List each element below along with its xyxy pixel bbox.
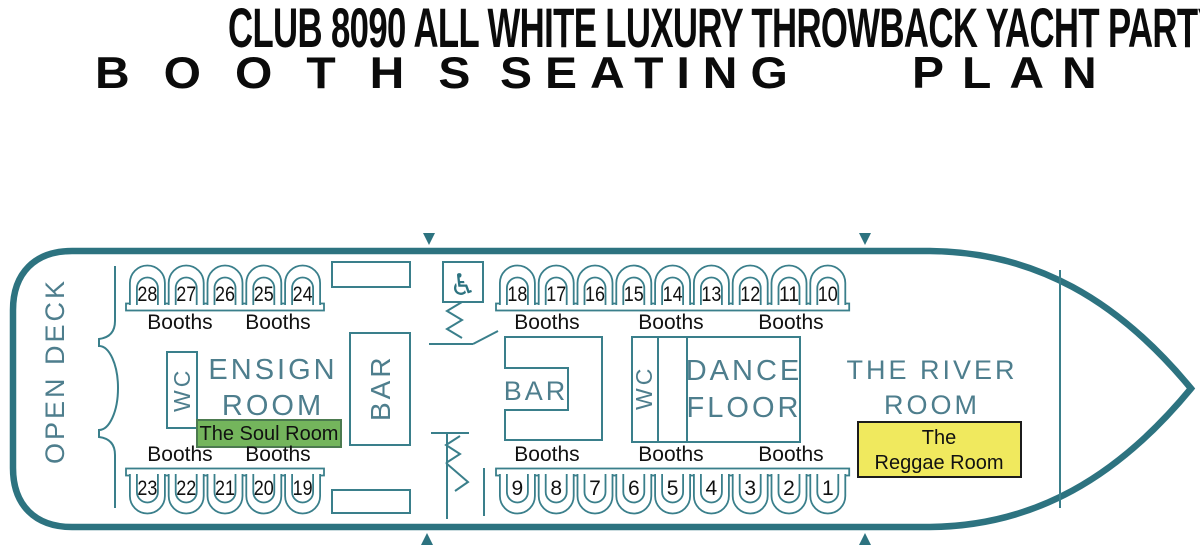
booth-number-28: 28 <box>137 283 157 306</box>
booth-number-13: 13 <box>701 283 721 306</box>
booths-label: Booths <box>245 443 310 466</box>
top-wall-box <box>332 262 410 287</box>
entrance-arrow-top-right <box>859 233 871 245</box>
booth-number-21: 21 <box>215 477 235 500</box>
dance-floor-label-line1: DANCE <box>686 355 803 387</box>
booth-group-top-left: 2827262524BoothsBooths <box>126 266 324 335</box>
booth-number-22: 22 <box>176 477 196 500</box>
booths-label: Booths <box>638 443 703 466</box>
booth-number-14: 14 <box>663 283 683 306</box>
stairs-top <box>429 302 498 344</box>
booth-number-27: 27 <box>176 283 196 306</box>
booth-number-7: 7 <box>589 477 601 500</box>
entrance-arrow-top-left <box>423 233 435 245</box>
booth-number-2: 2 <box>783 477 795 500</box>
booth-number-24: 24 <box>293 283 313 306</box>
open-deck-label: OPEN DECK <box>40 278 70 464</box>
booth-number-9: 9 <box>512 477 524 500</box>
booths-label: Booths <box>147 311 212 334</box>
reggae-room-label-line2: Reggae Room <box>875 452 1004 474</box>
booth-number-8: 8 <box>550 477 562 500</box>
booth-number-15: 15 <box>624 283 644 306</box>
river-room-label-line2: ROOM <box>884 390 980 420</box>
soul-room-label: The Soul Room <box>200 423 339 445</box>
wc-left-label: WC <box>169 368 195 412</box>
booth-number-12: 12 <box>740 283 760 306</box>
booth-number-6: 6 <box>628 477 640 500</box>
seating-plan-page: CLUB 8090 ALL WHITE LUXURY THROWBACK YAC… <box>0 0 1200 559</box>
ensign-room-label-line1: ENSIGN <box>208 354 337 386</box>
entrance-arrow-bottom-right <box>859 533 871 545</box>
bar-left-label: BAR <box>365 354 396 421</box>
booth-number-19: 19 <box>293 477 313 500</box>
dance-floor-label-line2: FLOOR <box>687 392 802 424</box>
wheelchair-icon: ♿ <box>450 268 477 303</box>
booth-number-23: 23 <box>137 477 157 500</box>
booths-label: Booths <box>758 443 823 466</box>
booth-number-18: 18 <box>507 283 527 306</box>
booth-number-10: 10 <box>818 283 838 306</box>
booth-group-top-right: 181716151413121110BoothsBoothsBooths <box>496 266 849 335</box>
ensign-room-label-line2: ROOM <box>222 390 324 422</box>
booth-group-bottom-left: 2322212019BoothsBooths <box>126 443 324 514</box>
bar-right-label: BAR <box>504 376 569 406</box>
booth-number-17: 17 <box>546 283 566 306</box>
booth-number-4: 4 <box>706 477 718 500</box>
bottom-wall-box <box>332 490 410 513</box>
booth-number-3: 3 <box>744 477 756 500</box>
booth-group-bottom-right: 987654321BoothsBoothsBooths <box>496 443 849 514</box>
booths-label: Booths <box>147 443 212 466</box>
booth-number-1: 1 <box>822 477 834 500</box>
booth-number-5: 5 <box>667 477 679 500</box>
stairs-bottom <box>431 433 484 519</box>
wc-right-label: WC <box>631 366 657 410</box>
yacht-floor-plan: OPEN DECK ♿ WC ENSIGN ROOM The Soul R <box>0 0 1200 559</box>
booth-number-16: 16 <box>585 283 605 306</box>
booths-label: Booths <box>758 311 823 334</box>
river-room-label-line1: THE RIVER <box>846 355 1017 385</box>
booth-number-26: 26 <box>215 283 235 306</box>
booth-number-20: 20 <box>254 477 274 500</box>
open-deck-wall <box>99 266 118 508</box>
booth-number-25: 25 <box>254 283 274 306</box>
entrance-arrow-bottom-left <box>421 533 433 545</box>
booths-label: Booths <box>514 311 579 334</box>
booths-label: Booths <box>245 311 310 334</box>
booths-label: Booths <box>638 311 703 334</box>
booths-label: Booths <box>514 443 579 466</box>
booth-number-11: 11 <box>779 283 799 306</box>
reggae-room-label-line1: The <box>922 427 956 449</box>
